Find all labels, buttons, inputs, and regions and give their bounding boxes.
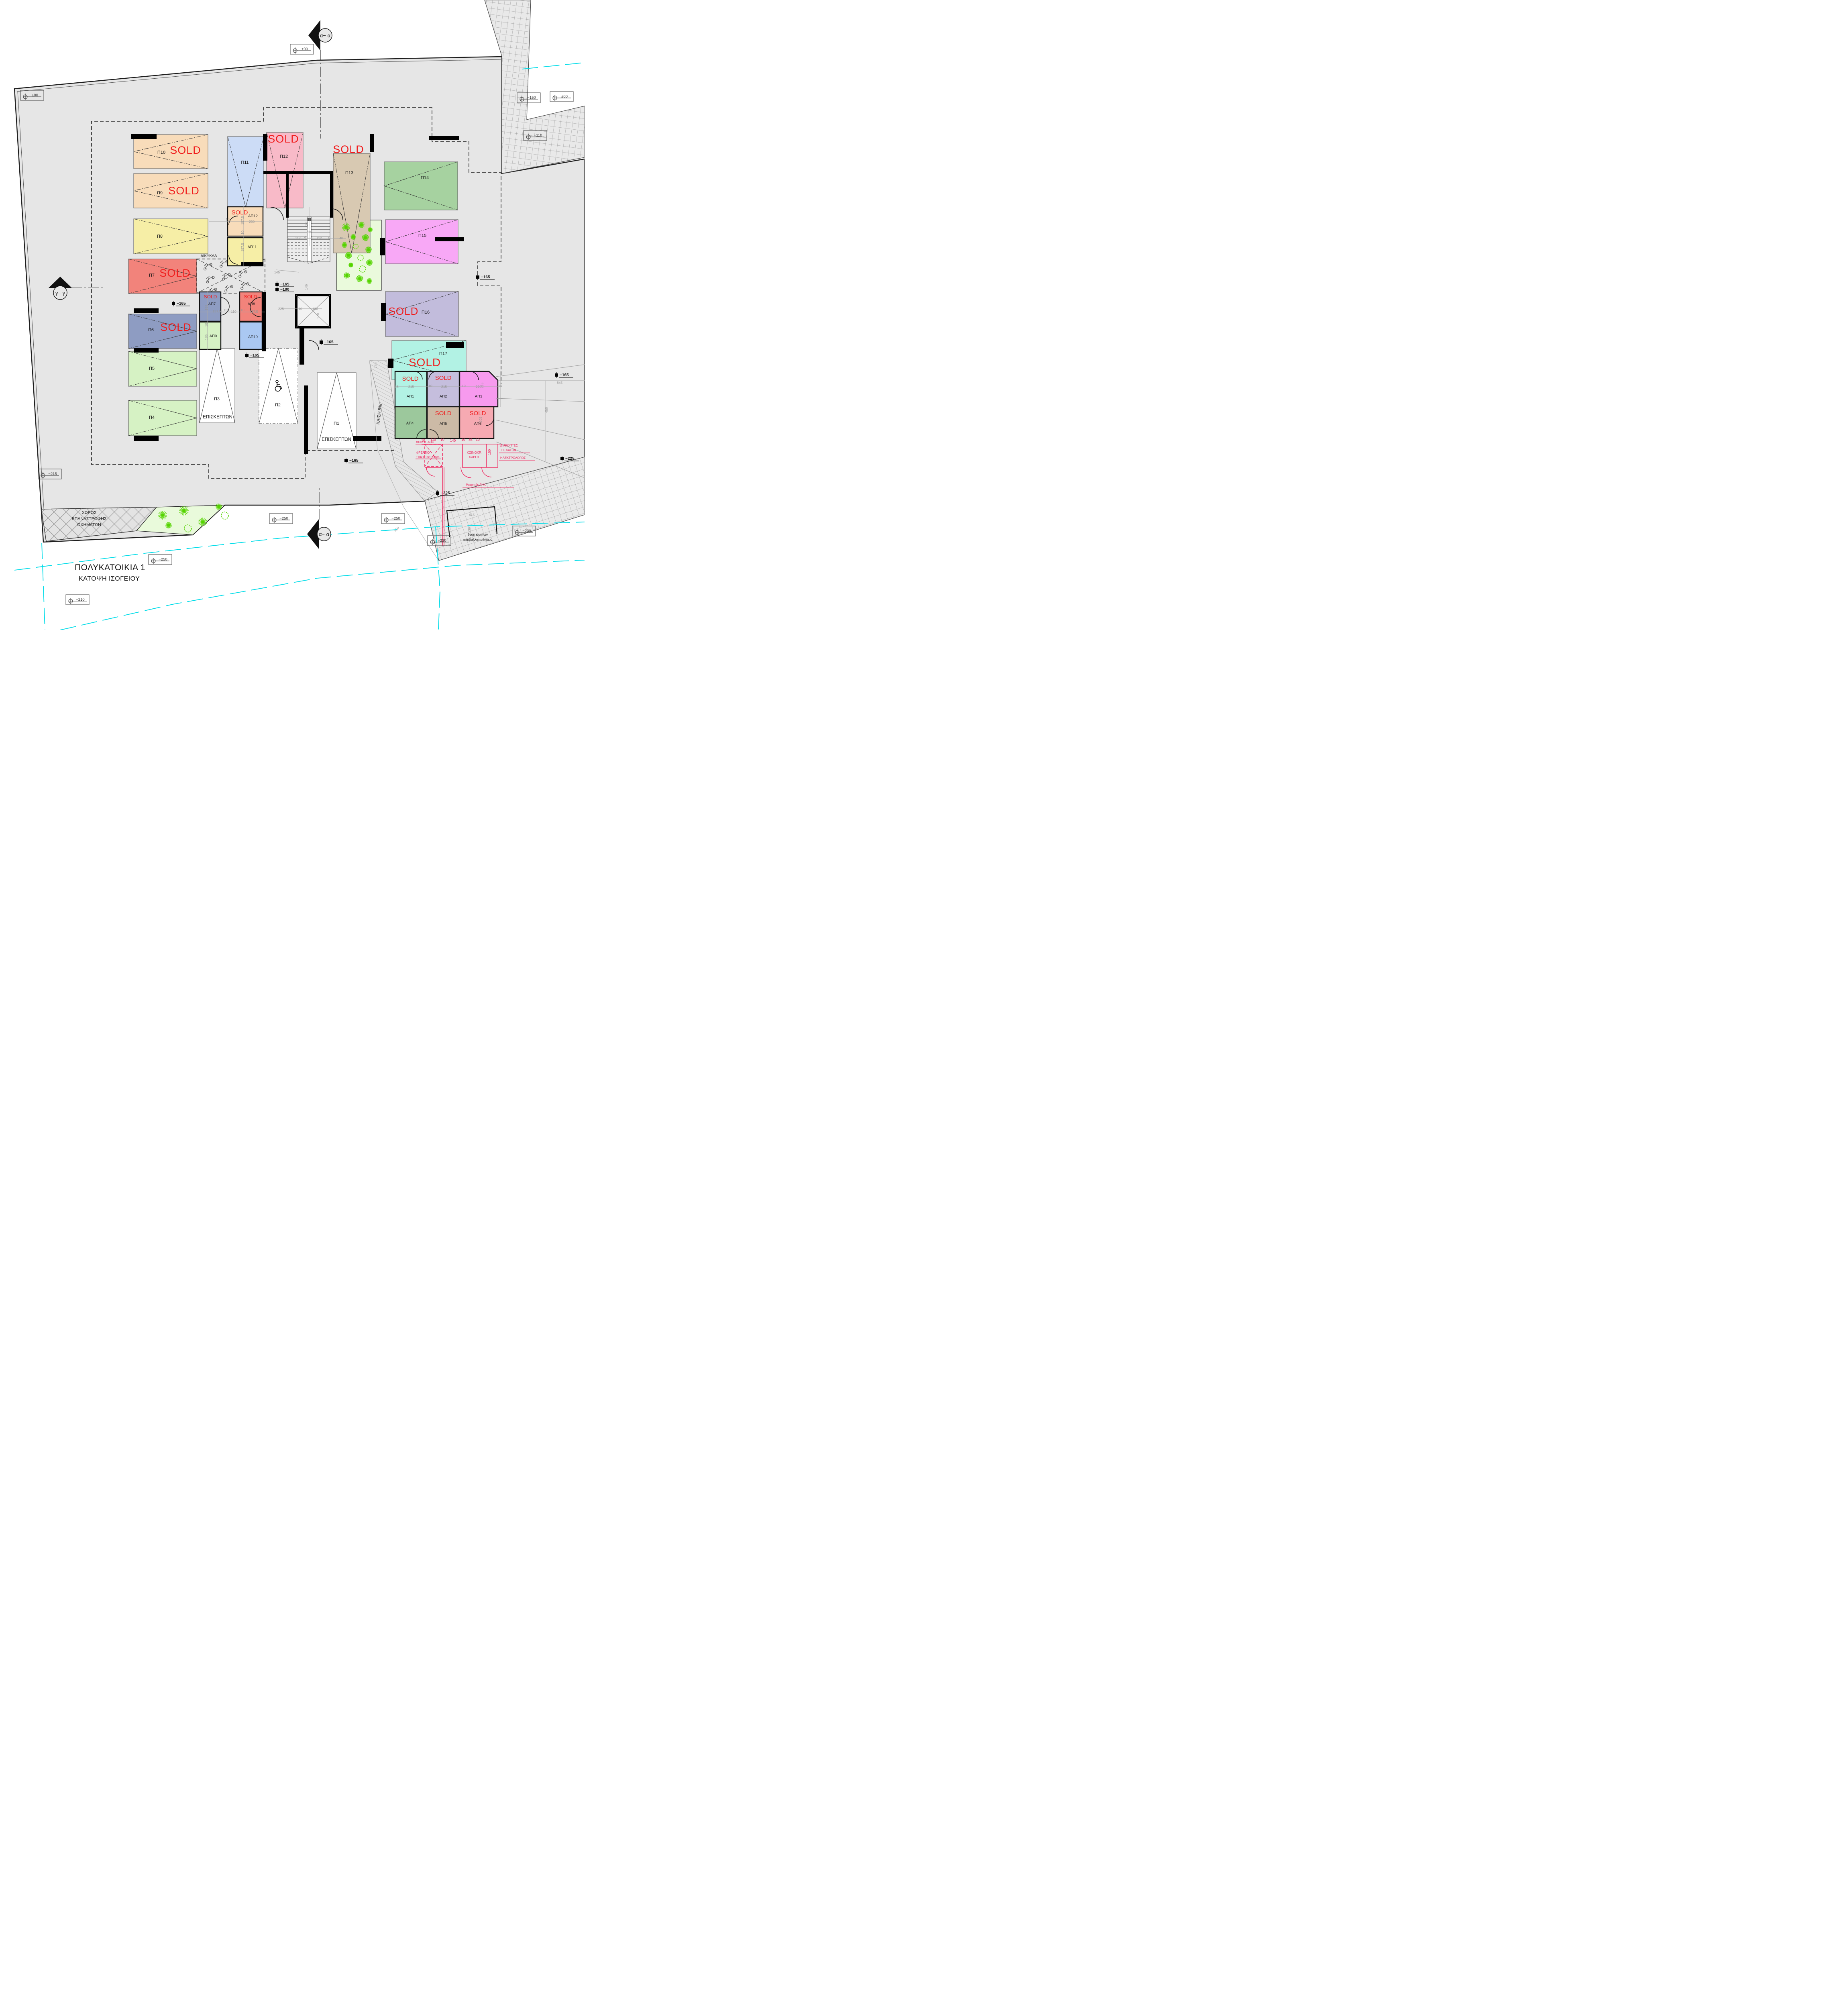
tree-icon (365, 247, 372, 253)
bike-area-label: ΔΙΚΥΚΛΑ (201, 254, 217, 258)
storage-label-ΑΠ12: ΑΠ12 (248, 214, 258, 218)
dimension-text: 10 (307, 230, 311, 234)
storage-label-ΑΠ3: ΑΠ3 (475, 394, 482, 399)
dimension-text: 10 (240, 308, 244, 312)
sold-overlay: SOLD (168, 185, 200, 197)
sold-overlay: SOLD (333, 143, 364, 155)
wall (446, 342, 464, 348)
sold-overlay: SOLD (244, 294, 257, 300)
dimension-text: 157.5 (240, 216, 244, 225)
wall (134, 308, 159, 313)
section-marker-label: γ− γ (55, 290, 65, 296)
parking-space-Π11 (228, 137, 264, 207)
floor-plan-page: ΧΩΡΟΣΕΠΑΝΑΣΤΡΟΦΗΣΟΧΗΜΑΤΩΝΚΛΙΣΗ 5%ΔΙΚΥΚΛΑ… (0, 0, 585, 630)
parking-label-Π9: Π9 (157, 191, 163, 196)
dimension-text: 145 (274, 270, 280, 274)
dimension-text: 146 (304, 284, 308, 290)
dimension-text: 25 (395, 385, 399, 389)
dimension-text: 5 (287, 236, 289, 240)
parking-label-Π4: Π4 (149, 415, 155, 420)
parking-space-Π15 (385, 220, 458, 264)
dimension-text: 450 (544, 407, 548, 413)
storage-room-ΑΠ11 (228, 238, 263, 266)
sold-overlay: SOLD (170, 144, 201, 156)
wall (380, 238, 385, 255)
sold-overlay: SOLD (204, 294, 217, 300)
dimension-text: 130 (467, 527, 471, 533)
electrical-label: ΗΛΕΚΤΡΟΛΟΓΟΣ (500, 456, 526, 460)
dimension-text: 40 (339, 236, 343, 240)
electrical-dimension: 150 (487, 449, 491, 455)
dimension-text: 10 (428, 384, 432, 388)
sold-overlay: SOLD (435, 375, 452, 381)
dimension-text: 180 (312, 307, 318, 311)
electrical-label: ΧΩΡΟΣ (469, 455, 479, 459)
waste-bins-label: θεση κινητων (468, 532, 488, 536)
turning-area-label: ΟΧΗΜΑΤΩΝ (77, 522, 101, 527)
dimension-text: 112 (316, 236, 322, 240)
electrical-dimension: 140 (450, 438, 456, 442)
electrical-label: ΔΙΑΚΟΠΤΕΣ (500, 444, 518, 447)
spot-level-value: −165 (560, 373, 569, 377)
dimension-text: 10 (224, 308, 228, 312)
spot-level-value: −165 (481, 275, 490, 279)
dimension-text: 5 (328, 236, 330, 240)
storage-label-ΑΠ1: ΑΠ1 (407, 394, 414, 399)
parking-label-Π12: Π12 (280, 154, 288, 159)
dimension-text: 10 (204, 323, 208, 327)
parking-space-Π4 (128, 400, 197, 436)
parking-label-Π10: Π10 (157, 150, 165, 155)
dimension-text: 215 (441, 385, 447, 389)
drawing-title: ΠΟΛΥΚΑΤΟΙΚΙΑ 1 (75, 563, 145, 573)
parking-space-Π3 (200, 349, 235, 423)
parking-label-Π7: Π7 (149, 273, 155, 278)
electrical-label: 110x110x100mm (416, 455, 440, 459)
sold-overlay: SOLD (435, 410, 452, 417)
storage-label-ΑΠ6: ΑΠ6 (474, 422, 481, 426)
parking-label-Π17: Π17 (439, 351, 447, 356)
spot-level-value: −225 (565, 457, 575, 461)
floor-plan-canvas: ΧΩΡΟΣΕΠΑΝΑΣΤΡΟΦΗΣΟΧΗΜΑΤΩΝΚΛΙΣΗ 5%ΔΙΚΥΚΛΑ… (0, 0, 585, 630)
parking-label-Π6: Π6 (148, 328, 154, 332)
wall (131, 134, 157, 139)
parking-label-Π2: Π2 (275, 403, 281, 408)
parking-label-Π5: Π5 (149, 366, 155, 371)
tree-icon (368, 227, 373, 232)
electrical-dimension: 10 (476, 438, 480, 442)
tree-icon (198, 518, 207, 526)
dimension-text: 10 (498, 384, 502, 388)
sold-overlay: SOLD (268, 133, 299, 145)
electrical-dimension: 10 (461, 438, 465, 442)
dimension-text: 215 (408, 385, 414, 389)
tree-icon (179, 506, 189, 516)
dimension-text: 4 (304, 235, 306, 239)
drawing-subtitle: ΚΑΤΟΨΗ ΙΣΟΓΕΙΟΥ (79, 575, 145, 583)
sold-overlay: SOLD (389, 305, 419, 317)
dimension-text: 112 (295, 236, 301, 240)
storage-label-ΑΠ10: ΑΠ10 (248, 335, 258, 339)
dimension-text: 4 (311, 235, 313, 239)
wall (435, 237, 464, 241)
dimension-text: 150 (393, 526, 400, 532)
parking-space-Π14 (384, 162, 458, 210)
wall (263, 171, 333, 174)
storage-label-ΑΠ2: ΑΠ2 (440, 394, 447, 399)
parking-label-Π15: Π15 (418, 233, 426, 238)
storage-label-ΑΠ9: ΑΠ9 (210, 334, 217, 338)
tree-icon (165, 522, 172, 528)
dimension-text: 137.5 (212, 309, 221, 313)
spot-level-value: −165 (349, 459, 359, 463)
sold-overlay: SOLD (409, 356, 441, 369)
tree-icon (342, 223, 350, 231)
spot-level-value: −225 (441, 491, 450, 495)
storage-label-ΑΠ7: ΑΠ7 (208, 302, 216, 306)
dimension-text: 415 (469, 513, 475, 517)
sold-overlay: SOLD (232, 209, 248, 216)
tree-icon (348, 263, 353, 267)
bush-icon (221, 512, 228, 519)
wall (300, 328, 304, 365)
tree-icon (344, 272, 350, 279)
spot-level-value: −165 (177, 302, 186, 306)
tree-icon (367, 278, 372, 284)
wall (388, 359, 393, 368)
dimension-text: 225 (278, 307, 284, 311)
dimension-text: 845 (557, 381, 562, 385)
tree-icon (362, 234, 369, 241)
electrical-label: ΚΟΙΝΟΧΡ. (467, 451, 481, 455)
tree-icon (366, 259, 373, 266)
wall (286, 173, 289, 218)
wall (263, 134, 267, 161)
parking-label-Π1: Π1 (334, 421, 339, 426)
storage-label-ΑΠ8: ΑΠ8 (248, 302, 255, 306)
spot-level-value: −180 (280, 287, 289, 292)
tree-icon (216, 504, 222, 510)
wall (381, 303, 386, 321)
dimension-text: 10 (240, 230, 244, 234)
tree-icon (158, 511, 167, 520)
electrical-dimension: 85 (469, 438, 473, 442)
contour-line (42, 543, 45, 630)
parking-note: ΕΠΙΣΚΕΠΤΩΝ (203, 415, 232, 420)
section-marker-label: α− α (319, 531, 330, 537)
wall (304, 385, 308, 454)
wall (134, 436, 159, 441)
dimension-text: 10 (298, 307, 302, 311)
storage-label-ΑΠ5: ΑΠ5 (440, 422, 447, 426)
parking-note: ΕΠΙΣΚΕΠΤΩΝ (322, 437, 351, 442)
dimension-text: 137.5 (249, 310, 258, 314)
parking-label-Π3: Π3 (214, 397, 220, 402)
spot-level-value: −165 (324, 340, 334, 345)
dimension-text: 230 (249, 220, 255, 224)
dimension-text: 185 (204, 305, 208, 310)
parking-space-Π8 (134, 219, 208, 254)
contour-line (522, 63, 585, 69)
parking-label-Π13: Π13 (345, 171, 353, 175)
electrical-label: Μετρητές ΑΗΚ (466, 483, 486, 487)
wall (370, 134, 374, 152)
dimension-text: 10 (462, 384, 466, 388)
wall (330, 173, 333, 218)
dimension-text: 10 (226, 217, 230, 221)
tree-icon (350, 234, 356, 240)
dimension-text: 157.5 (240, 243, 244, 252)
electrical-dimension: 10 (440, 438, 444, 442)
dimension-text: 110 (231, 310, 236, 314)
sold-overlay: SOLD (470, 410, 486, 417)
section-marker-label: α− α (320, 33, 331, 39)
tree-icon (356, 275, 363, 282)
sold-overlay: SOLD (402, 375, 419, 382)
parking-label-Π8: Π8 (157, 234, 163, 239)
turning-area-label: ΕΠΑΝΑΣΤΡΟΦΗΣ (72, 516, 107, 521)
waste-bins-label: σκυβαλλαποθηκων (463, 538, 492, 542)
title-block: ΠΟΛΥΚΑΤΟΙΚΙΑ 1 ΚΑΤΟΨΗ ΙΣΟΓΕΙΟΥ (75, 563, 145, 583)
storage-label-ΑΠ4: ΑΠ4 (406, 421, 414, 426)
tree-icon (358, 222, 365, 228)
dimension-text: 150 (374, 363, 378, 368)
parking-label-Π14: Π14 (421, 175, 429, 180)
parking-space-Π5 (128, 351, 197, 386)
dimension-text: 170 (316, 313, 320, 319)
storage-room-ΑΠ3 (460, 371, 498, 407)
sold-overlay: SOLD (160, 321, 192, 333)
sold-overlay: SOLD (159, 267, 191, 279)
spot-level-value: −165 (280, 282, 289, 287)
electrical-label: ΠΕΛΑΤΩΝ (501, 449, 516, 452)
parking-label-Π11: Π11 (241, 160, 249, 165)
wall (353, 436, 381, 441)
storage-label-ΑΠ11: ΑΠ11 (247, 245, 257, 249)
dimension-text: 125 (305, 222, 309, 228)
wall (262, 292, 266, 351)
spot-level-value: −165 (250, 353, 259, 358)
dimension-text: 215 (480, 383, 484, 388)
tree-icon (342, 242, 347, 248)
electrical-label: ΧΩΡΟΣ ΑΗΚ (416, 440, 434, 444)
electrical-label: ΦΡΕΑΤΙΟ (416, 451, 430, 455)
dimension-text: 185 (204, 334, 208, 340)
wall (134, 348, 159, 353)
wall (241, 262, 263, 266)
turning-area-label: ΧΩΡΟΣ (82, 510, 97, 515)
wall (429, 136, 459, 140)
parking-label-Π16: Π16 (422, 310, 430, 315)
tree-icon (345, 252, 352, 259)
